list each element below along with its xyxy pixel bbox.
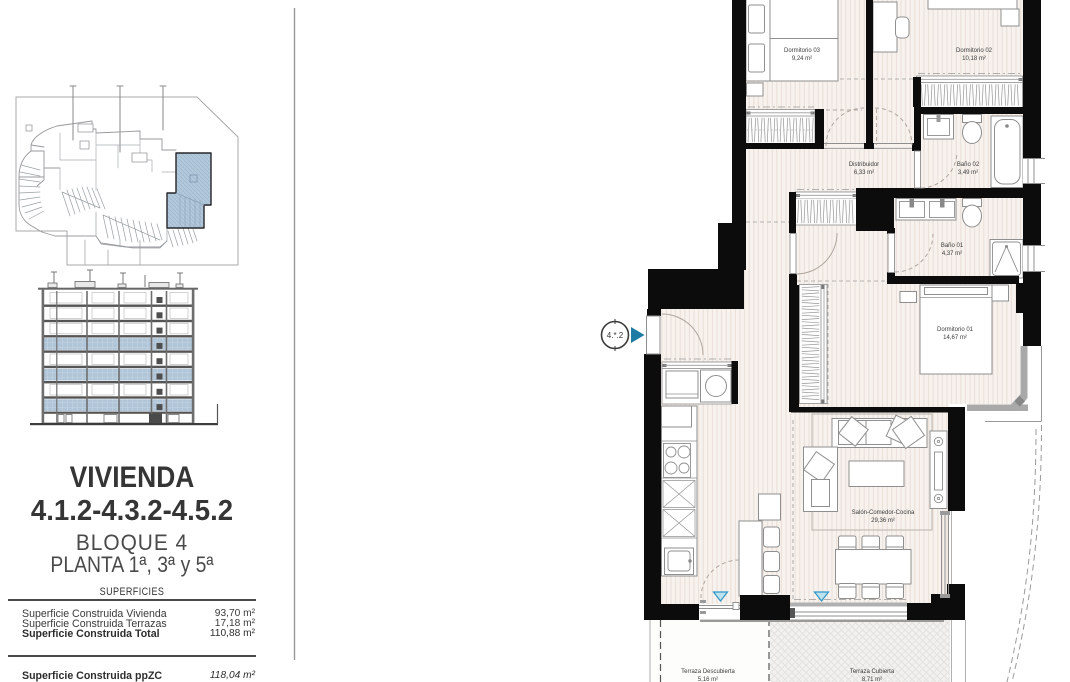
svg-text:6,33 m²: 6,33 m² [854,170,874,176]
svg-text:8,71 m²: 8,71 m² [862,677,882,682]
svg-text:Baño 02: Baño 02 [957,162,980,168]
svg-text:5,16 m²: 5,16 m² [698,677,718,682]
svg-text:4,37 m²: 4,37 m² [942,251,962,257]
svg-text:3,49 m²: 3,49 m² [958,170,978,176]
svg-text:14,67 m²: 14,67 m² [943,335,967,341]
svg-text:9,24 m²: 9,24 m² [792,56,812,62]
svg-text:Dormitorio 02: Dormitorio 02 [956,48,993,54]
svg-text:10,18 m²: 10,18 m² [962,56,986,62]
svg-text:Distribuidor: Distribuidor [849,162,879,168]
svg-text:Dormitorio 03: Dormitorio 03 [784,48,821,54]
svg-text:Terraza Cubierta: Terraza Cubierta [850,669,895,675]
svg-text:Terraza Descubierta: Terraza Descubierta [681,669,735,675]
svg-text:4.*.2: 4.*.2 [607,331,624,340]
svg-text:Baño 01: Baño 01 [941,243,964,249]
svg-text:Salón-Comedor-Cocina: Salón-Comedor-Cocina [852,510,915,516]
svg-text:Dormitorio 01: Dormitorio 01 [937,327,974,333]
svg-text:29,36 m²: 29,36 m² [871,518,895,524]
